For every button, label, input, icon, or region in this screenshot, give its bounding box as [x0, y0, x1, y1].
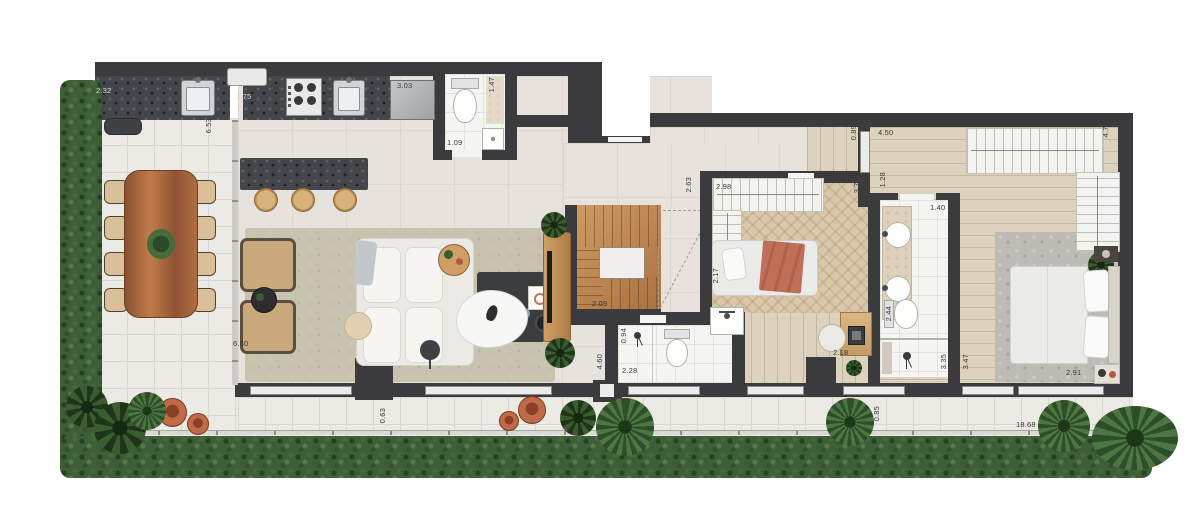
- wall-right: [1118, 113, 1133, 397]
- wall-masterbath-east: [948, 193, 960, 383]
- wall-under-lavabo: [517, 115, 568, 127]
- floor-lamp-stem: [429, 359, 431, 369]
- dimension-label: 2.44: [884, 306, 893, 321]
- closet-rail: [727, 213, 728, 241]
- kitchen-sink-basin: [338, 87, 360, 111]
- entry-door-leaf: [608, 137, 642, 142]
- dimension-label: 2.98: [716, 182, 731, 191]
- masterbath-toilet-bowl: [894, 299, 918, 329]
- foyer-floor-patch: [650, 127, 807, 145]
- dimension-label: 3.35: [939, 354, 948, 369]
- dimension-label: 2.32: [96, 86, 111, 95]
- cooktop: [286, 78, 322, 116]
- terracotta-pot: [499, 411, 519, 431]
- pillar-bedroom1: [806, 357, 836, 397]
- bath2-shower-head-icon: [634, 332, 641, 339]
- gourmet-sink-faucet: [195, 77, 201, 83]
- coffee-white-vase: [485, 304, 500, 322]
- dimension-label: 2.09: [592, 299, 607, 308]
- window-bedroom1: [747, 386, 804, 395]
- masterbath-shower-head-icon: [903, 352, 911, 360]
- terracotta-pot: [518, 396, 546, 424]
- burner: [307, 96, 316, 105]
- dimension-label: 18.68: [1016, 420, 1036, 429]
- wall-top-left: [95, 62, 602, 76]
- burner: [294, 96, 303, 105]
- dimension-label: 6.60: [233, 339, 248, 348]
- closet-rail: [1097, 176, 1098, 247]
- entry-recess: [602, 62, 650, 143]
- masterbath-faucet: [882, 231, 888, 237]
- dimension-label: 2.17: [711, 268, 720, 283]
- burner: [307, 83, 316, 92]
- nightstand: [1094, 246, 1118, 262]
- round-table-plant: [444, 250, 453, 259]
- laptop-screen: [852, 331, 861, 340]
- dimension-label: 1.47: [487, 77, 496, 92]
- bedroom1-pillow: [721, 247, 747, 282]
- nightstand-lamp: [1098, 369, 1106, 377]
- double-height-void: [658, 210, 706, 315]
- island-stool: [254, 188, 278, 212]
- round-table-bowl: [456, 258, 463, 265]
- dimension-label: 0.94: [619, 328, 628, 343]
- lavabo-toilet-bowl: [453, 89, 477, 123]
- window-bath2: [628, 386, 700, 395]
- nightstand: [1094, 364, 1120, 384]
- gourmet-sink: [181, 80, 215, 116]
- floor-lamp: [420, 340, 440, 360]
- lavabo-toilet-tank: [451, 78, 479, 89]
- master-closet-side: [1076, 172, 1120, 252]
- dimension-label: 1.40: [930, 203, 945, 212]
- window-corridor: [860, 131, 870, 173]
- side-table: [251, 287, 277, 313]
- bath2-faucet-bar: [719, 311, 735, 313]
- masterbath-shower-glass: [880, 338, 948, 340]
- kitchen-sink-faucet: [346, 77, 352, 83]
- corner-fern: [128, 392, 166, 430]
- dimension-label: 1.28: [878, 172, 887, 187]
- sofa-cushion: [405, 247, 443, 303]
- burner: [294, 83, 303, 92]
- dining-table: [124, 170, 198, 318]
- dimension-label: 0.63: [378, 408, 387, 423]
- bedroom1-blanket: [759, 240, 805, 293]
- cooktop-knobs: [288, 83, 291, 107]
- wall-bath2-north: [565, 312, 710, 325]
- master-closet-top: [966, 128, 1104, 174]
- tv: [547, 251, 552, 323]
- bath2-toilet-tank: [664, 329, 690, 339]
- terrace-palm-large: [1092, 406, 1178, 470]
- console-plant-bottom: [545, 338, 575, 368]
- dimension-label: 4.60: [595, 354, 604, 369]
- closet-rail: [971, 150, 1099, 151]
- dimension-label: 2.28: [622, 366, 637, 375]
- laptop: [848, 326, 865, 345]
- shower-arm: [637, 338, 638, 347]
- floor-plan: 2.323.753.031.471.096.532.632.980.894.50…: [0, 0, 1200, 527]
- island-stool: [291, 188, 315, 212]
- terrace-palm: [826, 398, 874, 446]
- dimension-label: 4.75: [1101, 122, 1110, 137]
- lavabo-door-leaf: [452, 150, 482, 157]
- window-hall: [843, 386, 905, 395]
- dimension-label: 2.91: [1066, 368, 1081, 377]
- bbq-grill: [104, 118, 142, 135]
- window-living-b: [425, 386, 552, 395]
- wall-bedroom1-west: [700, 171, 712, 318]
- dimension-label: 0.89: [849, 125, 858, 140]
- bath2-door-leaf: [640, 315, 666, 323]
- dimension-label: 3.03: [397, 81, 412, 90]
- stair-treads-top: [577, 205, 661, 247]
- bath2-vanity: [710, 307, 744, 335]
- dimension-label: 3.74: [852, 178, 861, 193]
- kitchen-sink: [333, 80, 365, 116]
- dining-centerpiece: [147, 229, 175, 259]
- terrace-bush: [560, 400, 596, 436]
- island-stool: [333, 188, 357, 212]
- staircase: [577, 205, 661, 313]
- masterbath-faucet: [882, 285, 888, 291]
- terracotta-pot: [187, 413, 209, 435]
- master-headboard: [1108, 266, 1120, 364]
- masterbath-sink: [885, 222, 911, 248]
- dimension-label: 3.47: [961, 354, 970, 369]
- wall-entry-step: [568, 62, 602, 143]
- counter-tray: [227, 68, 267, 86]
- dimension-label: 6.53: [204, 118, 213, 133]
- lavabo-sink: [482, 128, 504, 150]
- master-bed: [1010, 266, 1088, 364]
- dimension-label: 2.63: [684, 177, 693, 192]
- dimension-label: 1.40: [732, 352, 741, 367]
- terrace-palm: [1038, 400, 1090, 452]
- pouf: [344, 312, 372, 340]
- closet-rail: [717, 194, 819, 195]
- window-living-a: [250, 386, 352, 395]
- lavabo-wall-east: [505, 62, 517, 160]
- window-masterbath: [962, 386, 1014, 395]
- bedroom1-bed: [712, 240, 818, 296]
- dimension-label: 4.50: [878, 128, 893, 137]
- gourmet-sink-basin: [186, 87, 210, 111]
- stair-well: [599, 247, 645, 279]
- tv-console: [543, 232, 571, 342]
- bedroom1-plant: [846, 360, 862, 376]
- terrace-door-leaf: [600, 384, 614, 397]
- dimension-label: 0.85: [872, 406, 881, 421]
- dimension-label: 2.18: [833, 348, 848, 357]
- masterbath-mat: [882, 342, 892, 374]
- console-plant-top: [541, 212, 567, 238]
- master-bed-fold: [1047, 267, 1048, 363]
- bedroom1-closet-side: [712, 210, 742, 244]
- round-wood-table: [438, 244, 470, 276]
- lavabo-sink-drain: [491, 137, 495, 141]
- terrace-palm: [596, 398, 654, 456]
- kitchen-island: [240, 158, 368, 190]
- dimension-label: 1.09: [447, 138, 462, 147]
- bath2-toilet-bowl: [666, 339, 688, 367]
- stair-treads-bottom: [603, 277, 661, 313]
- armchair: [240, 238, 296, 292]
- nightstand-tray: [1109, 371, 1116, 378]
- side-table-plant: [256, 293, 264, 301]
- dimension-label: 3.75: [236, 92, 251, 101]
- window-master: [1018, 386, 1104, 395]
- wall-top-right: [650, 113, 1133, 127]
- bath2-shower-divider: [652, 325, 653, 383]
- bath2-faucet-icon: [724, 313, 730, 319]
- nightstand-lamp: [1102, 250, 1110, 258]
